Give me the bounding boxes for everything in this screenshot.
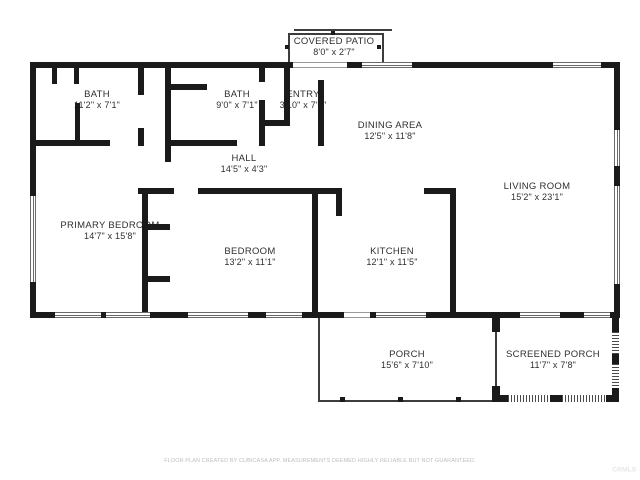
screen-post [550, 395, 562, 402]
porch-edge-line [318, 318, 320, 400]
screen-post [612, 354, 619, 364]
window [55, 312, 101, 318]
room-name: KITCHEN [366, 246, 417, 257]
wall-segment [450, 194, 456, 312]
room-name: BEDROOM [224, 246, 275, 257]
window [614, 130, 620, 166]
room-label-dining-area: DINING AREA 12'5" x 11'8" [358, 120, 423, 142]
wall-segment [171, 140, 237, 146]
door-opening [344, 312, 370, 318]
screen-post [492, 318, 500, 332]
window [520, 312, 560, 318]
screen-wall [612, 364, 619, 388]
wall-segment [142, 194, 148, 312]
room-dims: 11'2" x 7'1" [74, 100, 120, 111]
room-dims: 9'0" x 7'1" [216, 100, 258, 111]
screen-wall [612, 332, 619, 354]
wall-segment [336, 194, 342, 216]
wall-segment [259, 62, 265, 82]
wall-segment [75, 103, 80, 143]
room-dims: 13'2" x 11'1" [224, 257, 275, 268]
room-label-porch: PORCH 15'6" x 7'10" [381, 349, 433, 371]
screen-post [606, 395, 619, 402]
room-label-hall: HALL 14'5" x 4'3" [221, 153, 268, 175]
porch-post [340, 397, 345, 402]
room-label-covered-patio: COVERED PATIO 8'0" x 2'7" [294, 36, 375, 58]
wall-segment [198, 188, 318, 194]
window [362, 62, 412, 68]
room-label-kitchen: KITCHEN 12'1" x 11'5" [366, 246, 417, 268]
screen-wall [562, 395, 606, 402]
room-name: COVERED PATIO [294, 36, 375, 47]
wall-segment [148, 224, 170, 230]
wall-segment [30, 140, 110, 146]
room-dims: 8'0" x 2'7" [294, 47, 375, 58]
porch-edge-line [495, 332, 497, 386]
door-opening [293, 62, 347, 68]
room-dims: 12'5" x 11'8" [358, 131, 423, 142]
room-dims: 11'7" x 7'8" [506, 360, 600, 371]
wall-segment [165, 84, 207, 90]
wall-segment [284, 62, 290, 120]
porch-post [398, 397, 403, 402]
room-label-bedroom: BEDROOM 13'2" x 11'1" [224, 246, 275, 268]
wall-tick [285, 45, 289, 49]
wall-segment [262, 120, 290, 126]
room-name: PORCH [381, 349, 433, 360]
screen-wall [508, 395, 550, 402]
room-dims: 14'5" x 4'3" [221, 164, 268, 175]
room-name: HALL [221, 153, 268, 164]
room-label-screened-porch: SCREENED PORCH 11'7" x 7'8" [506, 349, 600, 371]
room-name: SCREENED PORCH [506, 349, 600, 360]
window [614, 186, 620, 284]
window [106, 312, 150, 318]
room-name: BATH [216, 89, 258, 100]
wall-segment [165, 62, 171, 162]
room-dims: 15'2" x 23'1" [504, 192, 571, 203]
room-name: LIVING ROOM [504, 181, 571, 192]
room-name: BATH [74, 89, 120, 100]
window [188, 312, 248, 318]
wall-tick [331, 31, 335, 35]
room-label-bath-1: BATH 11'2" x 7'1" [74, 89, 120, 111]
wall-segment [312, 194, 318, 312]
screen-post [612, 318, 619, 332]
wall-segment [148, 276, 170, 282]
room-label-bath-2: BATH 9'0" x 7'1" [216, 89, 258, 111]
patio-roof-line [294, 29, 392, 31]
wall-segment [52, 68, 57, 84]
window [553, 62, 601, 68]
wall-segment [138, 62, 144, 95]
wall-segment [318, 80, 324, 146]
room-dims: 12'1" x 11'5" [366, 257, 417, 268]
room-name: DINING AREA [358, 120, 423, 131]
window [584, 312, 610, 318]
room-label-living-room: LIVING ROOM 15'2" x 23'1" [504, 181, 571, 203]
room-dims: 15'6" x 7'10" [381, 360, 433, 371]
wall-segment [74, 68, 79, 84]
window [376, 312, 426, 318]
porch-post [456, 397, 461, 402]
window [30, 196, 36, 282]
floor-plan-canvas: COVERED PATIO 8'0" x 2'7" BATH 11'2" x 7… [0, 0, 640, 480]
wall-tick [377, 45, 381, 49]
window [266, 312, 302, 318]
screen-post [492, 395, 508, 402]
wall-segment [138, 128, 144, 146]
watermark: CRMLS [612, 466, 636, 474]
disclaimer-text: FLOOR PLAN CREATED BY CUBICASA APP. MEAS… [102, 457, 537, 463]
